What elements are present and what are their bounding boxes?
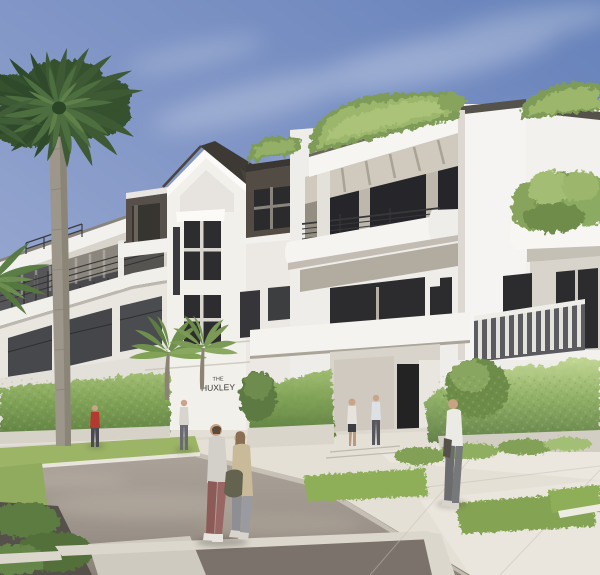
svg-text:HUXLEY: HUXLEY — [201, 382, 235, 393]
